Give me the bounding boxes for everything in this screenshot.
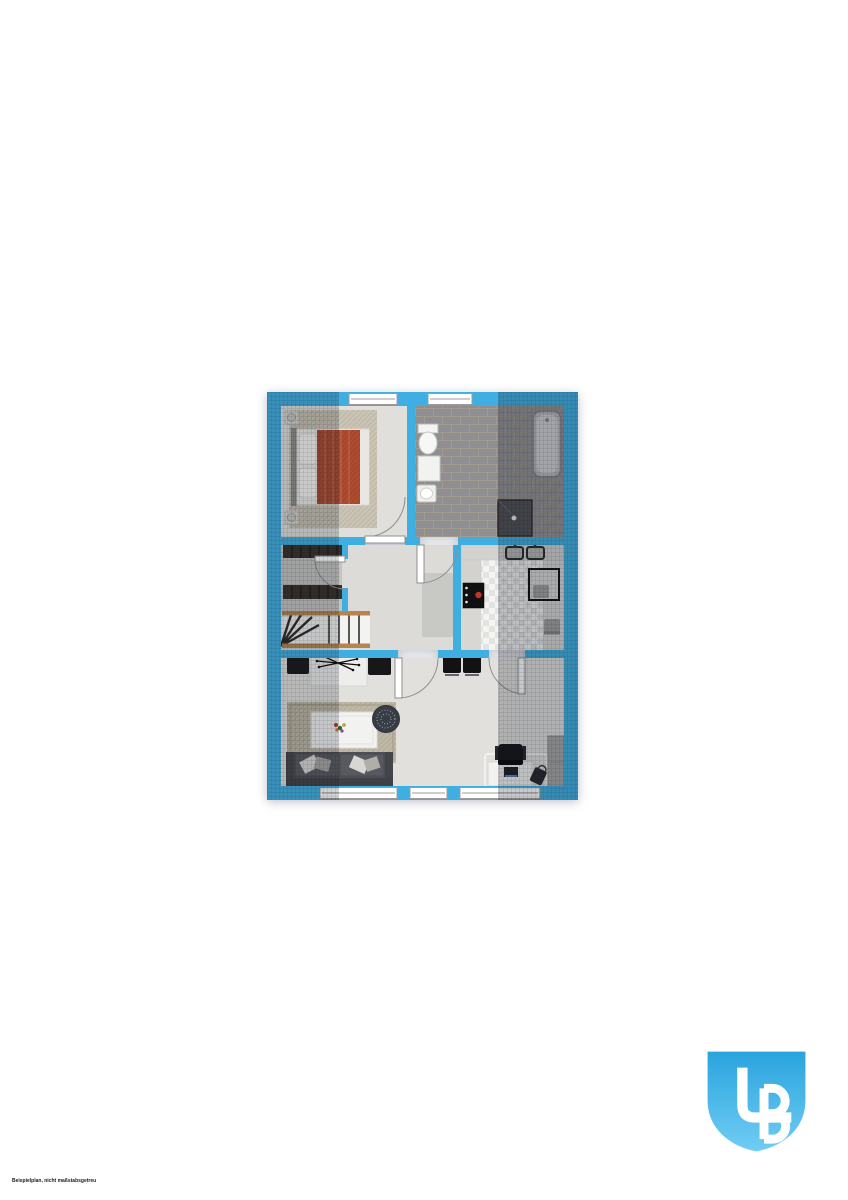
logo-shield xyxy=(708,1052,806,1152)
sheet-fold xyxy=(360,430,369,504)
company-logo: LB xyxy=(700,1046,813,1157)
window-living-2 xyxy=(410,788,447,799)
wall-bedroom-bathroom xyxy=(407,406,415,537)
disclaimer-text: Beispielplan, nicht maßstabsgetreu xyxy=(12,1178,96,1184)
wall-closet-bottom xyxy=(342,588,348,612)
stove xyxy=(463,583,484,608)
pouf xyxy=(373,706,400,733)
toilet xyxy=(418,424,438,454)
dining-chair-right xyxy=(368,657,391,675)
window-bathroom xyxy=(428,394,472,405)
floor-plan xyxy=(267,392,578,800)
washbasin xyxy=(417,485,436,502)
wall-living-b xyxy=(438,650,489,658)
window-bedroom xyxy=(349,394,397,405)
shadow-grid-left xyxy=(267,392,339,800)
wall-mid-b xyxy=(405,537,420,545)
shadow-grid-right xyxy=(498,392,578,800)
vanity-cabinet xyxy=(418,456,440,481)
